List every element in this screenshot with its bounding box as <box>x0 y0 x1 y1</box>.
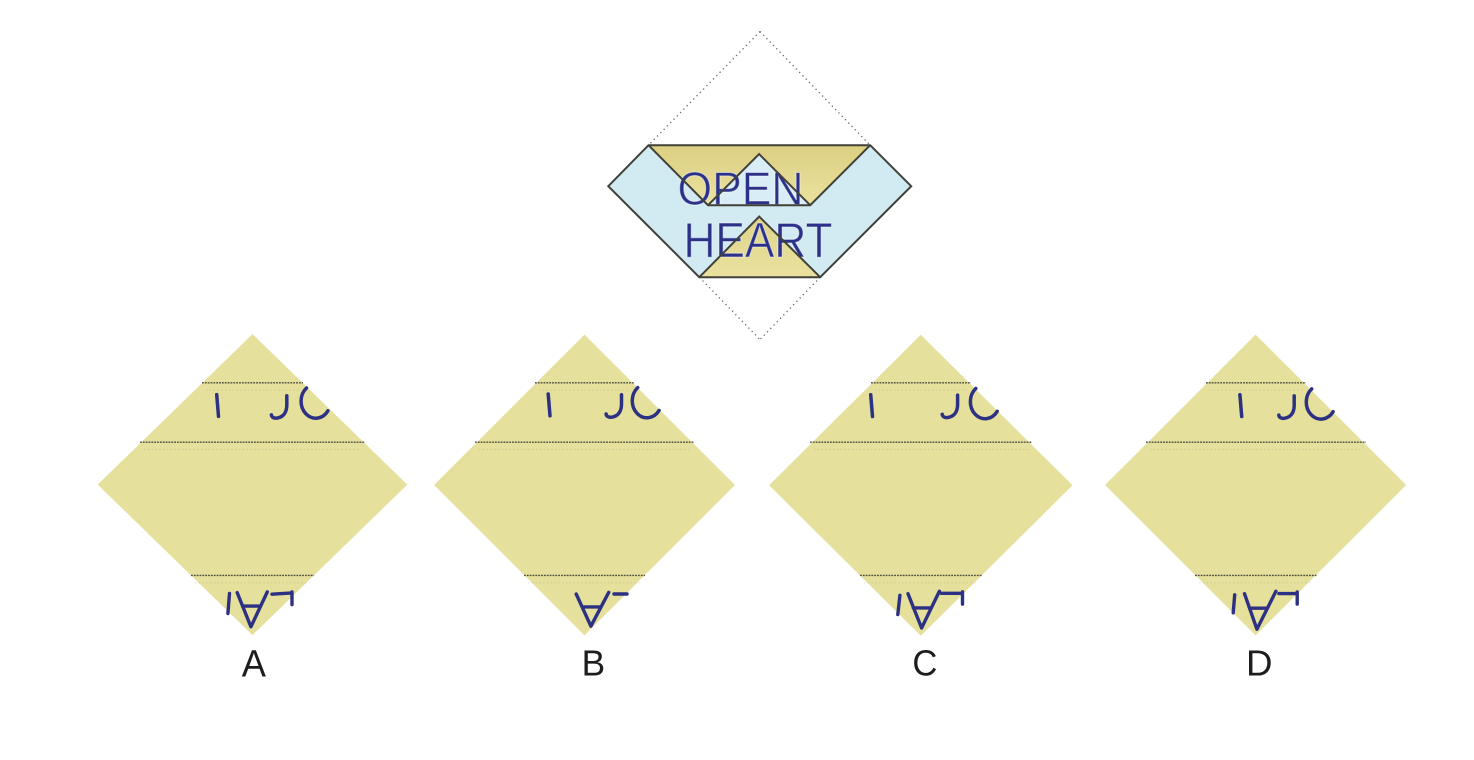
svg-text:A: A <box>242 644 267 686</box>
svg-text:OPEN: OPEN <box>678 163 804 215</box>
svg-text:B: B <box>582 643 606 684</box>
svg-text:D: D <box>1246 643 1273 684</box>
svg-text:HEART: HEART <box>684 214 833 268</box>
svg-text:C: C <box>912 643 937 684</box>
